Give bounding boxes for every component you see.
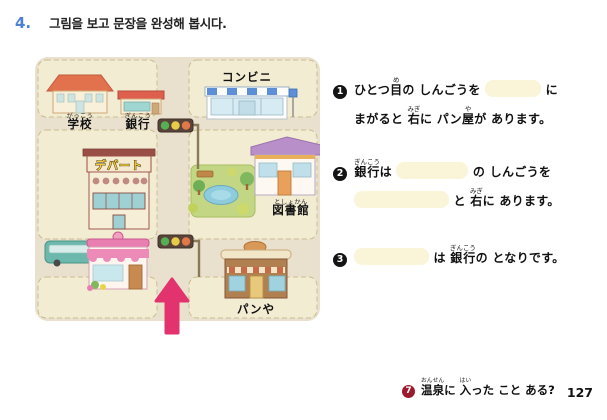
exercise-2-line-2: と 右みぎに あります。 <box>354 187 560 216</box>
park-bush <box>188 203 198 213</box>
exercise-3-number: 3 <box>333 253 347 267</box>
flower-shop-building <box>87 232 149 291</box>
exercise-1-line-2: まがると 右みぎに パン屋やが あります。 <box>354 105 558 134</box>
park <box>188 165 255 217</box>
page-number: 127 <box>567 381 593 405</box>
page-header: 4. 그림을 보고 문장을 완성해 봅시다. <box>15 13 227 32</box>
ruby-text: 右みぎ <box>408 112 420 126</box>
exercise-3-body: は 銀行ぎんこうの となりです。 <box>354 244 565 273</box>
bakery-door <box>250 276 263 298</box>
footer-question-number: 7 <box>402 385 415 398</box>
park-bush <box>228 168 237 177</box>
answer-blank <box>354 191 449 208</box>
exercise-2: 2 銀行ぎんこうは の しんごうを と 右みぎに あります。 <box>333 158 607 216</box>
ruby-text: 右みぎ <box>470 194 482 208</box>
flower-shop-door <box>129 265 142 289</box>
library-label: 図書館 <box>272 203 310 217</box>
text-segment: まがると <box>354 112 408 126</box>
text-segment: の となりです。 <box>476 251 565 265</box>
text-segment: が あります。 <box>474 112 551 126</box>
park-bench <box>197 171 213 177</box>
ruby-text: 入はい <box>460 383 472 397</box>
exercise-3: 3 は 銀行ぎんこうの となりです。 <box>333 244 607 273</box>
text-segment: に <box>541 83 558 97</box>
town-map-illustration: がっこう 学校 ぎんこう 銀行 コンビニ デパート としょかん 図書館 パンや <box>35 57 320 347</box>
exercise-2-number: 2 <box>333 167 347 181</box>
text-segment: に あります。 <box>483 194 560 208</box>
answer-blank <box>485 80 541 97</box>
ruby-text: 目め <box>390 83 402 97</box>
ruby-text: 温泉おんせん <box>421 383 444 397</box>
question-number: 4. <box>15 14 31 32</box>
text-segment: は <box>380 165 397 179</box>
exercise-2-line-1: 銀行ぎんこうは の しんごうを <box>354 158 560 187</box>
text-segment: に パン <box>420 112 462 126</box>
answer-blank <box>396 162 468 179</box>
bakery-building <box>221 242 291 299</box>
text-segment: に <box>444 383 460 397</box>
bank-label: 銀行 <box>126 117 151 131</box>
park-bush <box>237 203 249 215</box>
exercise-1-body: ひとつ目めの しんごうを に まがると 右みぎに パン屋やが あります。 <box>354 76 558 134</box>
exercise-1-line-1: ひとつ目めの しんごうを に <box>354 76 558 105</box>
convenience-store-building <box>205 87 297 119</box>
text-segment: ひとつ <box>354 83 390 97</box>
footer-question-text: 温泉おんせんに 入はいった こと ある? <box>421 378 555 402</box>
school-door <box>76 101 84 113</box>
exercise-1: 1 ひとつ目めの しんごうを に まがると 右みぎに パン屋やが あります。 <box>333 76 607 134</box>
depato-door <box>113 215 125 229</box>
exercise-1-number: 1 <box>333 85 347 99</box>
text-segment: は <box>429 251 450 265</box>
ruby-text: 銀行ぎんこう <box>354 165 380 179</box>
library-building <box>251 137 320 195</box>
text-segment: った こと ある? <box>471 383 555 397</box>
bakery-label: パンや <box>237 302 275 316</box>
text-segment: の しんごうを <box>402 83 485 97</box>
convenience-store-label: コンビニ <box>222 70 272 84</box>
school-label: 学校 <box>68 117 93 131</box>
bank-door <box>152 103 159 114</box>
ruby-text: 銀行ぎんこう <box>450 251 475 265</box>
school-building <box>47 75 113 113</box>
department-store-label: デパート <box>95 158 143 172</box>
bank-building <box>118 91 164 114</box>
answer-blank <box>354 248 429 265</box>
page-footer: 7 温泉おんせんに 入はいった こと ある? 127 <box>402 378 593 405</box>
store-door <box>239 101 255 115</box>
store-sign <box>289 89 297 97</box>
library-door <box>278 171 291 195</box>
text-segment: の しんごうを <box>468 165 551 179</box>
text-segment: と <box>449 194 470 208</box>
instruction-text: 그림을 보고 문장을 완성해 봅시다. <box>49 13 226 32</box>
ruby-text: 屋や <box>462 112 474 126</box>
town-map-svg: がっこう 学校 ぎんこう 銀行 コンビニ デパート としょかん 図書館 パンや <box>35 57 320 347</box>
park-tree <box>240 172 254 186</box>
exercise-3-line-1: は 銀行ぎんこうの となりです。 <box>354 244 565 273</box>
exercise-2-body: 銀行ぎんこうは の しんごうを と 右みぎに あります。 <box>354 158 560 216</box>
